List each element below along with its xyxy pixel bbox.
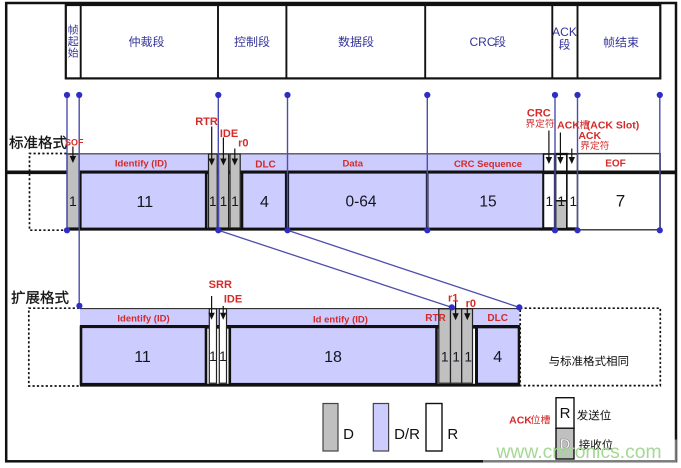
svg-text:1: 1 — [570, 194, 578, 209]
svg-text:r0: r0 — [238, 137, 248, 149]
svg-text:DLC: DLC — [487, 313, 508, 324]
svg-text:11: 11 — [136, 194, 153, 211]
svg-text:4: 4 — [260, 194, 269, 211]
svg-text:0-64: 0-64 — [345, 194, 376, 211]
svg-text:RTR: RTR — [425, 313, 446, 324]
svg-text:Identify (ID): Identify (ID) — [115, 158, 167, 169]
svg-text:7: 7 — [616, 192, 625, 211]
svg-text:1: 1 — [209, 349, 217, 364]
svg-text:4: 4 — [493, 349, 502, 366]
svg-text:Identify (ID): Identify (ID) — [117, 313, 169, 324]
svg-text:CRC: CRC — [527, 108, 551, 120]
svg-text:1: 1 — [452, 349, 460, 364]
svg-text:15: 15 — [479, 194, 496, 211]
svg-text:1: 1 — [558, 194, 566, 209]
svg-text:CRC Sequence: CRC Sequence — [454, 159, 522, 170]
svg-text:EOF: EOF — [605, 158, 626, 169]
svg-text:Id entify (ID): Id entify (ID) — [313, 314, 368, 325]
svg-text:1: 1 — [69, 193, 77, 209]
svg-text:1: 1 — [231, 194, 239, 209]
svg-text:R: R — [447, 426, 458, 443]
svg-text:SRR: SRR — [209, 279, 232, 291]
svg-text:CRC: CRC — [470, 35, 496, 49]
svg-text:1: 1 — [441, 349, 449, 364]
svg-text:D: D — [343, 426, 354, 443]
svg-text:1: 1 — [209, 194, 217, 209]
svg-text:11: 11 — [134, 349, 151, 366]
svg-text:IDE: IDE — [220, 128, 238, 140]
svg-text:18: 18 — [324, 349, 342, 366]
svg-text:r1: r1 — [448, 292, 458, 304]
svg-text:www.cntronics.com: www.cntronics.com — [496, 442, 662, 463]
svg-text:1: 1 — [546, 194, 554, 209]
svg-text:D/R: D/R — [394, 426, 420, 443]
svg-text:1: 1 — [219, 349, 227, 364]
svg-text:ACK: ACK — [509, 414, 532, 426]
svg-text:Data: Data — [343, 158, 364, 169]
svg-text:RTR: RTR — [195, 116, 218, 128]
svg-text:DLC: DLC — [255, 160, 276, 171]
svg-text:ACK: ACK — [557, 119, 580, 131]
svg-text:ACK: ACK — [578, 130, 601, 142]
svg-text:IDE: IDE — [224, 294, 242, 306]
svg-text:R: R — [560, 405, 571, 422]
svg-text:SOF: SOF — [65, 138, 84, 148]
svg-text:r0: r0 — [466, 298, 476, 310]
svg-text:ACK: ACK — [552, 25, 577, 39]
svg-text:1: 1 — [220, 194, 228, 209]
svg-text:1: 1 — [464, 349, 472, 364]
